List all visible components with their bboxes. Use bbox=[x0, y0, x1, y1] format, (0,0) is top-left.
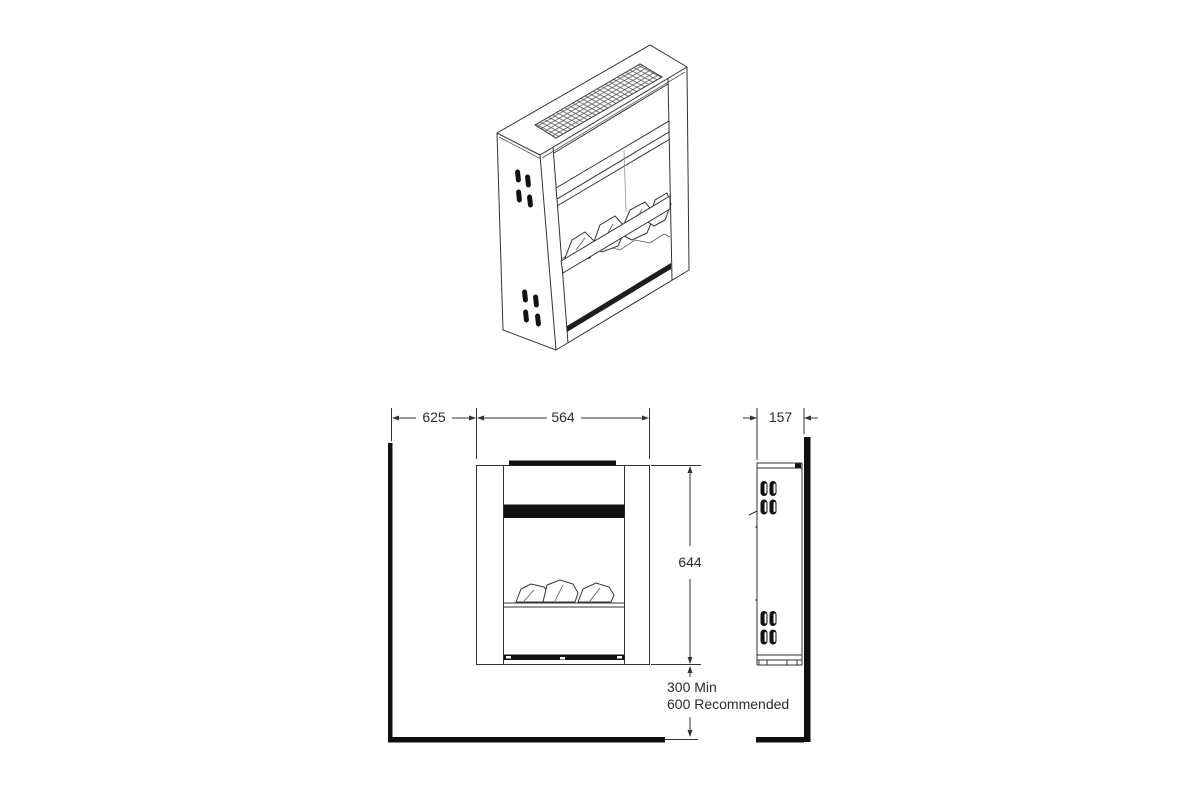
technical-drawing-page: 625 564 644 300 Min 600 Recommended bbox=[0, 0, 1200, 800]
isometric-view bbox=[497, 45, 689, 350]
iso-fuel-bed bbox=[561, 196, 670, 273]
vent-slot-icon bbox=[761, 481, 777, 515]
wall-line-front bbox=[388, 443, 393, 742]
dim-unit-depth-label: 157 bbox=[769, 409, 793, 425]
wall-line-side bbox=[804, 437, 811, 742]
floor-line-front bbox=[388, 737, 665, 743]
floor-line-side bbox=[756, 737, 804, 743]
vent-slot-icon bbox=[515, 169, 521, 182]
front-frame-inner-edges bbox=[504, 466, 625, 665]
front-top-grille-strip bbox=[509, 461, 616, 466]
dim-clearance-min-label: 300 Min bbox=[667, 679, 717, 695]
vent-slot-icon bbox=[525, 174, 531, 187]
iso-canopy bbox=[556, 121, 670, 206]
front-log-stones bbox=[516, 580, 614, 602]
side-foot-right bbox=[787, 660, 797, 665]
dim-unit-height: 644 bbox=[651, 466, 702, 665]
dim-unit-width: 564 bbox=[477, 408, 650, 459]
front-bottom-trim-bar bbox=[504, 655, 625, 661]
side-top-bracket bbox=[795, 464, 801, 469]
side-screw-dot bbox=[756, 526, 758, 528]
side-elevation-view: 157 bbox=[743, 408, 818, 743]
front-elevation-view: 625 564 644 300 Min 600 Recommended bbox=[388, 408, 789, 743]
dim-unit-height-label: 644 bbox=[678, 554, 702, 570]
dim-unit-width-label: 564 bbox=[551, 409, 575, 425]
vent-slot-icon bbox=[516, 189, 522, 202]
vent-slot-icon bbox=[533, 294, 539, 307]
front-heater-canopy-bar bbox=[504, 505, 625, 519]
side-bottom-edge-lines bbox=[757, 655, 802, 660]
vent-slot-icon bbox=[523, 309, 529, 322]
vent-slot-icon bbox=[535, 313, 541, 326]
iso-interior-corner bbox=[624, 150, 626, 212]
front-unit-frame bbox=[477, 466, 650, 665]
vent-slot-icon bbox=[761, 611, 777, 645]
front-fuel-bed-shelf bbox=[504, 603, 625, 607]
side-screw-dot bbox=[756, 599, 758, 601]
dim-floor-clearance: 300 Min 600 Recommended bbox=[667, 666, 789, 737]
iso-bottom-trim bbox=[567, 263, 671, 332]
dim-wall-offset-label: 625 bbox=[422, 409, 446, 425]
side-vents bbox=[761, 481, 777, 645]
drawing-canvas: 625 564 644 300 Min 600 Recommended bbox=[0, 0, 1200, 800]
vent-slot-icon bbox=[527, 194, 533, 207]
iso-side-vents bbox=[515, 169, 541, 326]
side-foot-left bbox=[759, 660, 767, 665]
dim-wall-offset: 625 bbox=[392, 408, 477, 459]
dim-clearance-recommended-label: 600 Recommended bbox=[667, 696, 789, 712]
side-fixing-tick bbox=[749, 511, 757, 515]
vent-slot-icon bbox=[522, 289, 528, 302]
